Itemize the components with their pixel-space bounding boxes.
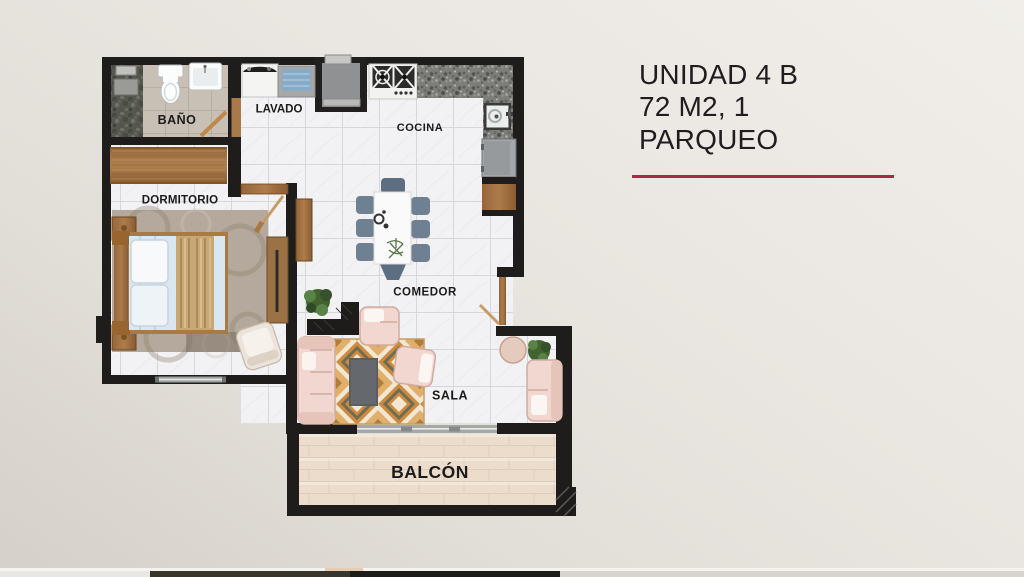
svg-text:COCINA: COCINA bbox=[397, 122, 443, 134]
svg-text:COMEDOR: COMEDOR bbox=[393, 287, 457, 299]
svg-text:BALCÓN: BALCÓN bbox=[391, 461, 469, 482]
svg-text:SALA: SALA bbox=[432, 389, 468, 403]
svg-text:BAÑO: BAÑO bbox=[158, 112, 197, 127]
svg-text:LAVADO: LAVADO bbox=[256, 104, 303, 116]
svg-text:DORMITORIO: DORMITORIO bbox=[142, 195, 219, 207]
